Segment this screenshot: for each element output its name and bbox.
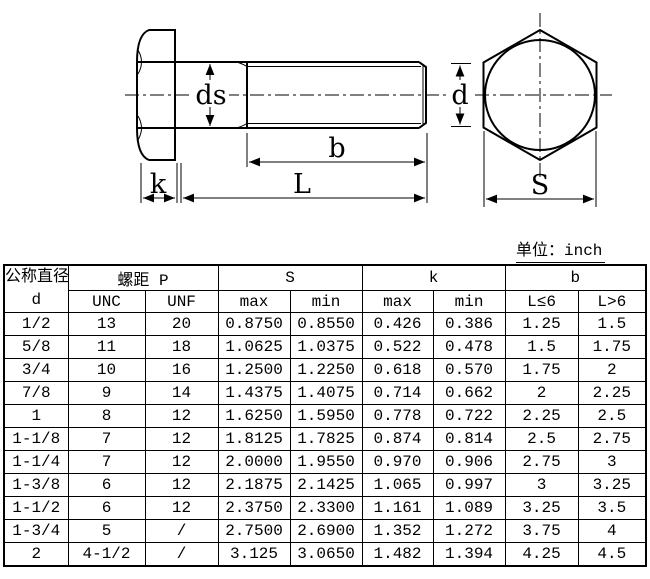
table-cell: 0.478 bbox=[433, 336, 505, 359]
table-cell: 3.75 bbox=[505, 520, 578, 543]
table-body: 1/213200.87500.85500.4260.3861.251.55/81… bbox=[4, 313, 646, 567]
table-cell: 1.394 bbox=[433, 543, 505, 567]
table-cell: 7/8 bbox=[4, 382, 68, 405]
table-cell: 2 bbox=[578, 359, 646, 382]
header-b-l-le-6: L≤6 bbox=[505, 291, 578, 313]
header-s-group: S bbox=[218, 265, 362, 291]
table-cell: / bbox=[145, 543, 218, 567]
table-cell: 3.25 bbox=[578, 474, 646, 497]
dimension-d: d bbox=[449, 64, 471, 127]
table-cell: 3/4 bbox=[4, 359, 68, 382]
header-s-min: min bbox=[290, 291, 362, 313]
header-k-min: min bbox=[433, 291, 505, 313]
table-cell: 14 bbox=[145, 382, 218, 405]
dim-label-S: S bbox=[531, 170, 550, 201]
table-head-section: 公称直径 d 螺距 P S k b UNC UNF max min max mi… bbox=[4, 265, 646, 313]
table-cell: 6 bbox=[68, 497, 145, 520]
table-cell: 0.570 bbox=[433, 359, 505, 382]
table-cell: 1-3/4 bbox=[4, 520, 68, 543]
table-cell: 1.0375 bbox=[290, 336, 362, 359]
table-row: 3/410161.25001.22500.6180.5701.752 bbox=[4, 359, 646, 382]
table-cell: 4.25 bbox=[505, 543, 578, 567]
table-cell: 12 bbox=[145, 428, 218, 451]
table-cell: 2.3750 bbox=[218, 497, 290, 520]
table-cell: 0.426 bbox=[362, 313, 433, 336]
table-cell: 1.75 bbox=[578, 336, 646, 359]
dimension-k: k bbox=[141, 163, 177, 203]
table-cell: 18 bbox=[145, 336, 218, 359]
table-cell: 1 bbox=[4, 405, 68, 428]
dimension-L: L bbox=[181, 163, 425, 203]
table-cell: 11 bbox=[68, 336, 145, 359]
table-cell: 2.25 bbox=[505, 405, 578, 428]
table-row: 1-1/26122.37502.33001.1611.0893.253.5 bbox=[4, 497, 646, 520]
table-cell: 7 bbox=[68, 428, 145, 451]
dim-label-b: b bbox=[328, 133, 345, 164]
table-cell: 1.2500 bbox=[218, 359, 290, 382]
table-cell: 0.997 bbox=[433, 474, 505, 497]
table-cell: 1.272 bbox=[433, 520, 505, 543]
dim-label-L: L bbox=[293, 169, 311, 200]
table-cell: 1.8125 bbox=[218, 428, 290, 451]
table-cell: 0.522 bbox=[362, 336, 433, 359]
table-cell: 1.482 bbox=[362, 543, 433, 567]
dimension-ds: ds bbox=[193, 64, 229, 126]
table-cell: 2 bbox=[4, 543, 68, 567]
header-row-subcolumns: UNC UNF max min max min L≤6 L>6 bbox=[4, 291, 646, 313]
table-cell: 1.0625 bbox=[218, 336, 290, 359]
table-cell: 1-1/8 bbox=[4, 428, 68, 451]
table-cell: 2.1425 bbox=[290, 474, 362, 497]
table-cell: 2 bbox=[505, 382, 578, 405]
table-row: 18121.62501.59500.7780.7222.252.5 bbox=[4, 405, 646, 428]
table-cell: 2.0000 bbox=[218, 451, 290, 474]
table-cell: 3 bbox=[578, 451, 646, 474]
header-b-group: b bbox=[505, 265, 646, 291]
table-cell: 1.352 bbox=[362, 520, 433, 543]
table-cell: 1.5 bbox=[505, 336, 578, 359]
table-cell: 1.9550 bbox=[290, 451, 362, 474]
header-unf: UNF bbox=[145, 291, 218, 313]
header-unc: UNC bbox=[68, 291, 145, 313]
dim-label-k: k bbox=[150, 169, 167, 200]
table-cell: 2.6900 bbox=[290, 520, 362, 543]
table-cell: 0.8550 bbox=[290, 313, 362, 336]
table-cell: 0.814 bbox=[433, 428, 505, 451]
table-cell: 10 bbox=[68, 359, 145, 382]
table-cell: 0.714 bbox=[362, 382, 433, 405]
table-cell: 1.7825 bbox=[290, 428, 362, 451]
table-cell: / bbox=[145, 520, 218, 543]
table-cell: 3.25 bbox=[505, 497, 578, 520]
table-cell: 5 bbox=[68, 520, 145, 543]
table-cell: 16 bbox=[145, 359, 218, 382]
table-cell: 0.970 bbox=[362, 451, 433, 474]
table-cell: 2.25 bbox=[578, 382, 646, 405]
table-cell: 12 bbox=[145, 405, 218, 428]
table-cell: 3.125 bbox=[218, 543, 290, 567]
table-cell: 9 bbox=[68, 382, 145, 405]
table-row: 1-1/47122.00001.95500.9700.9062.753 bbox=[4, 451, 646, 474]
table-row: 1-3/86122.18752.14251.0650.99733.25 bbox=[4, 474, 646, 497]
header-pitch-group: 螺距 P bbox=[68, 265, 218, 291]
table-cell: 1.75 bbox=[505, 359, 578, 382]
table-row: 5/811181.06251.03750.5220.4781.51.75 bbox=[4, 336, 646, 359]
table-cell: 1-1/4 bbox=[4, 451, 68, 474]
table-cell: 2.7500 bbox=[218, 520, 290, 543]
table-cell: 4-1/2 bbox=[68, 543, 145, 567]
table-cell: 1.2250 bbox=[290, 359, 362, 382]
header-s-max: max bbox=[218, 291, 290, 313]
table-cell: 1.065 bbox=[362, 474, 433, 497]
table-cell: 2.5 bbox=[578, 405, 646, 428]
table-cell: 0.874 bbox=[362, 428, 433, 451]
table-cell: 1.089 bbox=[433, 497, 505, 520]
table-cell: 2.5 bbox=[505, 428, 578, 451]
dimension-b: b bbox=[247, 133, 427, 203]
header-k-group: k bbox=[362, 265, 505, 291]
table-cell: 1-1/2 bbox=[4, 497, 68, 520]
table-cell: 1.5950 bbox=[290, 405, 362, 428]
dim-label-d: d bbox=[451, 80, 468, 111]
table-cell: 0.722 bbox=[433, 405, 505, 428]
table-cell: 3.0650 bbox=[290, 543, 362, 567]
table-cell: 4 bbox=[578, 520, 646, 543]
header-row-groups: 公称直径 d 螺距 P S k b bbox=[4, 265, 646, 291]
header-nominal-diameter-sub: d bbox=[5, 289, 68, 312]
table-cell: 0.386 bbox=[433, 313, 505, 336]
table-cell: 2.75 bbox=[505, 451, 578, 474]
table-cell: 1.4375 bbox=[218, 382, 290, 405]
table-cell: 5/8 bbox=[4, 336, 68, 359]
table-cell: 0.618 bbox=[362, 359, 433, 382]
table-cell: 0.8750 bbox=[218, 313, 290, 336]
header-nominal-diameter-title: 公称直径 bbox=[5, 266, 68, 289]
table-cell: 1/2 bbox=[4, 313, 68, 336]
table-cell: 12 bbox=[145, 497, 218, 520]
header-b-l-gt-6: L>6 bbox=[578, 291, 646, 313]
table-cell: 1-3/8 bbox=[4, 474, 68, 497]
table-cell: 4.5 bbox=[578, 543, 646, 567]
spec-sheet-page: ds b L k d bbox=[0, 0, 650, 579]
header-nominal-diameter: 公称直径 d bbox=[4, 265, 68, 313]
table-cell: 20 bbox=[145, 313, 218, 336]
table-cell: 0.662 bbox=[433, 382, 505, 405]
unit-note: 单位：inch bbox=[516, 242, 605, 263]
table-cell: 7 bbox=[68, 451, 145, 474]
table-row: 1/213200.87500.85500.4260.3861.251.5 bbox=[4, 313, 646, 336]
table-cell: 12 bbox=[145, 474, 218, 497]
table-cell: 1.5 bbox=[578, 313, 646, 336]
table-cell: 0.906 bbox=[433, 451, 505, 474]
header-k-max: max bbox=[362, 291, 433, 313]
table-cell: 8 bbox=[68, 405, 145, 428]
table-cell: 1.25 bbox=[505, 313, 578, 336]
table-row: 24-1/2/3.1253.06501.4821.3944.254.5 bbox=[4, 543, 646, 567]
table-cell: 2.3300 bbox=[290, 497, 362, 520]
table-row: 1-1/87121.81251.78250.8740.8142.52.75 bbox=[4, 428, 646, 451]
table-cell: 3 bbox=[505, 474, 578, 497]
table-cell: 1.161 bbox=[362, 497, 433, 520]
table-cell: 0.778 bbox=[362, 405, 433, 428]
table-cell: 1.4075 bbox=[290, 382, 362, 405]
table-cell: 2.1875 bbox=[218, 474, 290, 497]
table-cell: 12 bbox=[145, 451, 218, 474]
table-cell: 1.6250 bbox=[218, 405, 290, 428]
bolt-dimension-table: 公称直径 d 螺距 P S k b UNC UNF max min max mi… bbox=[3, 264, 647, 567]
table-cell: 3.5 bbox=[578, 497, 646, 520]
bolt-technical-drawing: ds b L k d bbox=[0, 0, 650, 240]
table-cell: 13 bbox=[68, 313, 145, 336]
table-row: 7/89141.43751.40750.7140.66222.25 bbox=[4, 382, 646, 405]
table-row: 1-3/45/2.75002.69001.3521.2723.754 bbox=[4, 520, 646, 543]
table-cell: 6 bbox=[68, 474, 145, 497]
table-cell: 2.75 bbox=[578, 428, 646, 451]
dim-label-ds: ds bbox=[195, 80, 226, 111]
